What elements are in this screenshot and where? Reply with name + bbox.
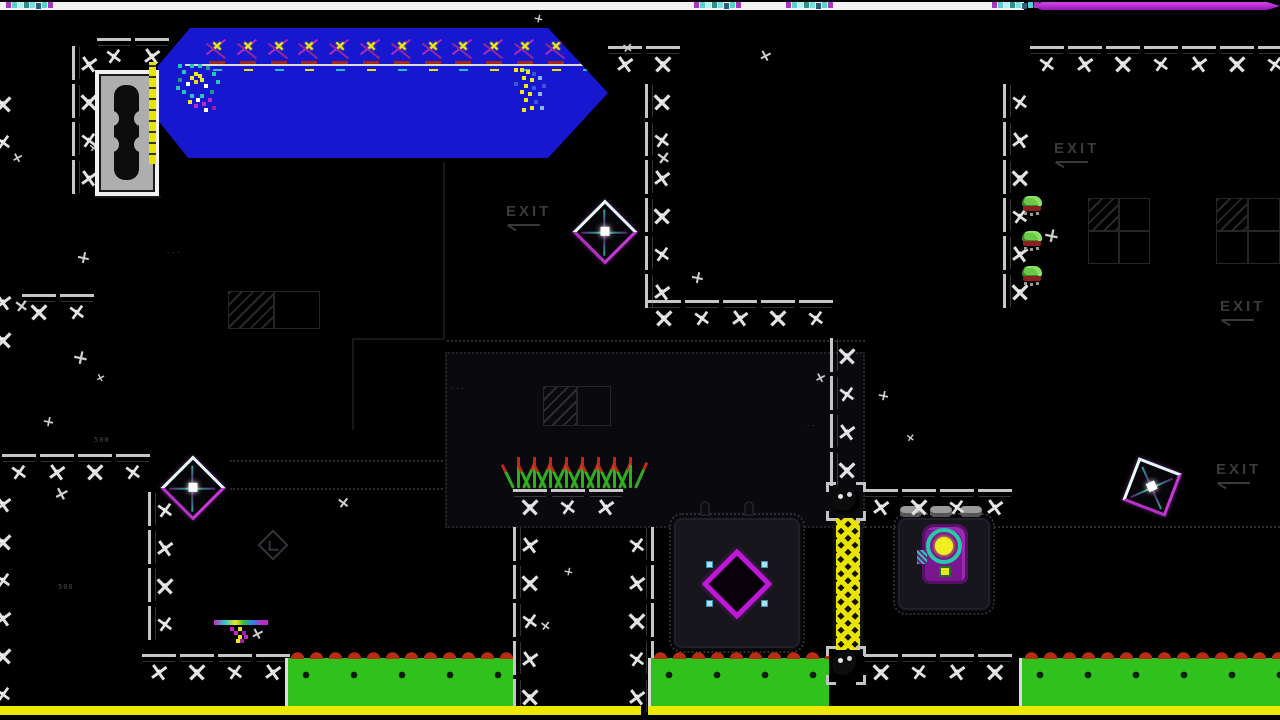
glitch-text: 500 [58,583,74,591]
green-platform [285,658,513,707]
hud-pixel-cluster [700,2,705,8]
sparkle-star [534,14,543,23]
hud-bottom-bar [0,706,641,715]
door-yellow-strip [149,62,156,164]
banner-spike [452,39,474,65]
panel-chimney [700,501,710,516]
wall-tile [1256,44,1280,82]
bg-line [443,162,445,340]
wall-tile [938,487,976,525]
ball-guard [828,484,864,519]
bg-dotted-line [230,460,443,462]
wall-tile [938,652,976,690]
hazard-diamond [1122,457,1181,516]
banner-spike [206,39,228,65]
hazard-ladder [833,518,863,650]
banner-spike [391,39,413,65]
wall-tile [644,44,682,82]
wall-tile [1142,44,1180,82]
glitch-text: .. [806,420,816,428]
wall-tile [587,487,625,525]
bg-dotted-panel [445,352,865,528]
icon-door-diamond [257,529,288,560]
enemy-bug [1020,231,1044,252]
wall-tile [618,525,656,563]
sparkle-star [905,432,916,443]
wall-tile [683,298,721,336]
wall-tile [643,82,681,120]
bg-window-grid [1216,198,1280,264]
wall-tile [20,292,58,330]
wall-tile [900,487,938,525]
exit-sign: EXIT [1220,298,1265,321]
objective-outline [702,549,773,620]
sparkle-star [336,495,351,510]
banner-spike [483,39,505,65]
wall-tile [58,292,96,330]
wall-tile [146,604,184,642]
pickup-glitch-sprite [214,620,268,625]
wall-tile [549,487,587,525]
banner-spike [268,39,290,65]
hud-progress-bar [1032,2,1280,10]
wall-tile [114,452,152,490]
hazard-diamond [572,199,637,264]
wall-tile [1001,82,1039,120]
exit-arrow-icon [1056,158,1088,163]
green-platform [648,658,829,707]
enemy-bug [1020,266,1044,287]
exit-sign: EXIT [1216,461,1261,484]
wall-tile [511,563,549,601]
banner-spike [329,39,351,65]
level-scene: 500500........EXITEXITEXITEXIT [0,0,1280,720]
bg-dotted-line [230,488,443,490]
enemy-bug [1020,196,1044,217]
sparkle-star [691,271,704,284]
wall-tile [828,336,866,374]
wall-tile [178,652,216,690]
exit-label: EXIT [506,203,551,220]
hud-pixel-cluster [792,2,797,8]
hud-pixel-cluster [998,2,1003,8]
wall-tile [1066,44,1104,82]
glitch-text: ... [450,383,466,391]
sparkle-star [77,251,90,264]
teleporter [922,524,968,584]
exit-arrow-icon [1222,316,1254,321]
exit-arrow-icon [1218,479,1250,484]
banner-spike [360,39,382,65]
sparkle-star [95,372,105,382]
panel-chimney [744,501,754,516]
sparkle-star [564,567,573,576]
wall-tile [0,320,22,358]
exit-arrow-icon [508,221,540,226]
bg-line [352,338,354,430]
wall-tile [140,652,178,690]
wall-tile [76,452,114,490]
wall-tile [721,298,759,336]
banner-spike [237,39,259,65]
exit-sign: EXIT [506,203,551,226]
player-glitch-sprite [178,64,182,68]
hud-bottom-bar [648,706,1280,715]
clone-glitch-sprite [514,68,518,72]
wall-tile [146,566,184,604]
wall-tile [0,560,22,598]
bg-dotted-line [447,340,865,342]
sparkle-star [758,48,773,63]
game-screen[interactable]: 500500........EXITEXITEXITEXIT [0,0,1280,720]
wall-tile [828,374,866,412]
wall-tile [618,601,656,639]
exit-label: EXIT [1216,461,1261,478]
wall-tile [862,652,900,690]
wall-tile [618,563,656,601]
banner-spike [576,39,598,65]
sparkle-star [43,416,54,427]
wall-tile [1001,158,1039,196]
bg-line [95,196,161,198]
wall-tile [828,412,866,450]
sparkle-star [1044,228,1059,243]
wall-tile [146,528,184,566]
wall-tile [1001,120,1039,158]
banner-spike [514,39,536,65]
wall-tile [1028,44,1066,82]
grass-hazard [511,452,639,488]
exit-label: EXIT [1220,298,1265,315]
wall-tile [511,525,549,563]
wall-tile [511,487,549,525]
exit-label: EXIT [1054,140,1099,157]
wall-tile [900,652,938,690]
wall-tile [0,84,22,122]
banner-spike [545,39,567,65]
banner-spike [298,39,320,65]
blue-banner-arrow [158,28,608,158]
bg-window-grid [543,386,611,426]
wall-tile [643,272,681,310]
glitch-text: 500 [94,436,110,444]
wall-tile [759,298,797,336]
bg-line [352,338,445,340]
glitch-text: ... [166,247,182,255]
bg-window-grid [1088,198,1150,264]
wall-tile [0,522,22,560]
sparkle-star [878,390,889,401]
hud-top-strip [0,2,1024,10]
wall-tile [216,652,254,690]
bg-window-grid [228,291,320,329]
sparkle-star [73,350,88,365]
wall-tile [1180,44,1218,82]
wall-tile [0,636,22,674]
wall-tile [976,487,1014,525]
wall-tile [511,639,549,677]
objective-diamond [700,547,774,621]
exit-sign: EXIT [1054,140,1099,163]
door-keyhole [114,85,139,180]
wall-tile [976,652,1014,690]
hud-pixel-cluster [12,2,17,8]
wall-tile [1218,44,1256,82]
wall-tile [38,452,76,490]
sparkle-star [250,626,265,641]
wall-tile [643,196,681,234]
ball-guard [828,648,864,683]
wall-tile [1104,44,1142,82]
wall-tile [797,298,835,336]
wall-tile [0,484,22,522]
wall-tile [643,234,681,272]
wall-tile [0,598,22,636]
wall-tile [862,487,900,525]
banner-spike [422,39,444,65]
green-platform [1019,658,1280,707]
